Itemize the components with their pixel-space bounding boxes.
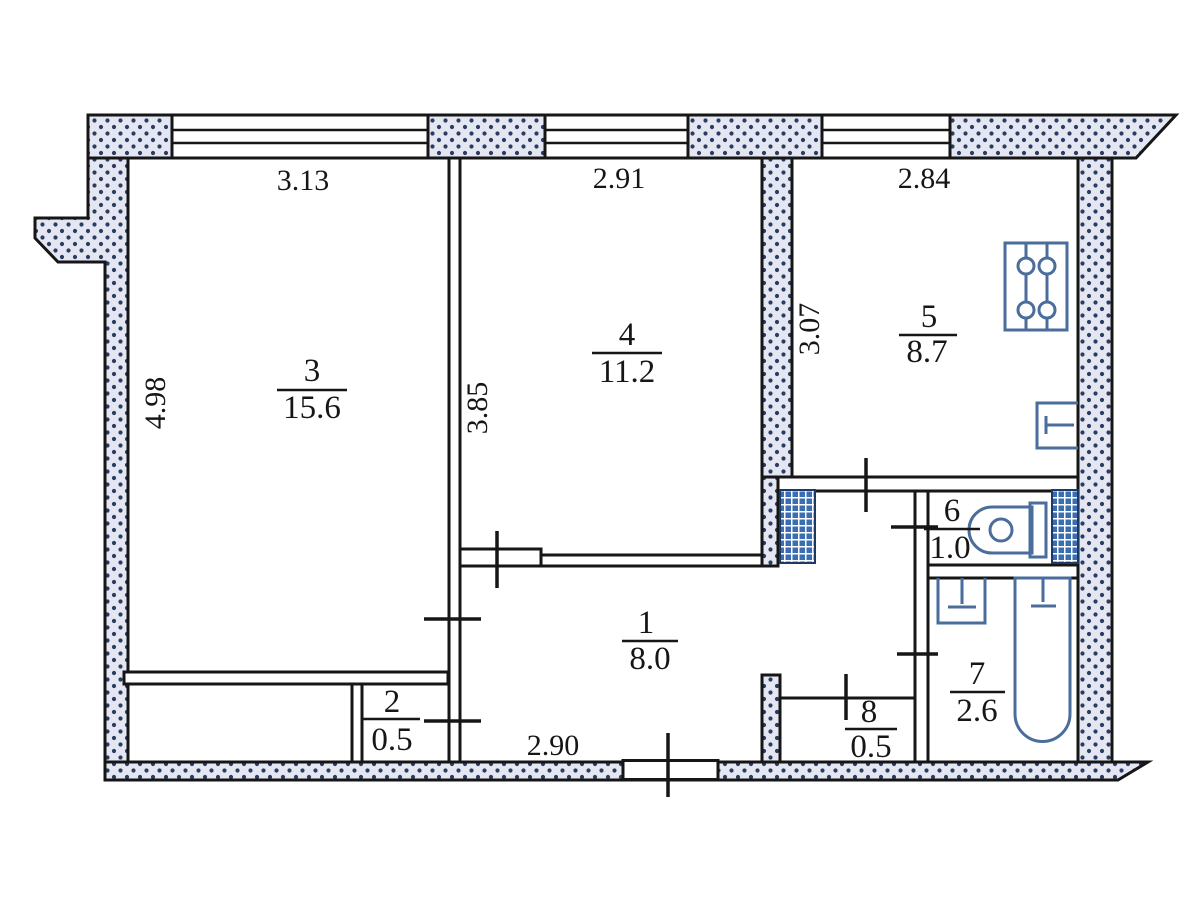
floor-plan-page: 3.13 2.91 2.84 4.98 3.85 3.07 2.90 3 15.… (0, 0, 1200, 900)
room-label-5: 5 8.7 (899, 299, 957, 370)
stove-icon (1005, 243, 1067, 330)
dim-room4-depth: 3.85 (461, 382, 494, 435)
dim-left-wall: 4.98 (139, 377, 172, 430)
svg-text:5: 5 (921, 299, 938, 335)
entrance-opening (623, 761, 718, 780)
kitchen-sink-icon (1037, 403, 1078, 448)
wall-kitchen-partition-bearing (762, 158, 792, 477)
room-label-6: 6 1.0 (924, 493, 980, 566)
svg-text:0.5: 0.5 (850, 729, 891, 765)
floor-plan-drawing: 3.13 2.91 2.84 4.98 3.85 3.07 2.90 3 15.… (0, 0, 1200, 900)
room-label-7: 7 2.6 (950, 656, 1005, 729)
svg-text:3: 3 (304, 353, 321, 389)
partition-room4-hall-left (460, 549, 541, 566)
partition-kitchen-bottom (778, 477, 1078, 491)
dim-window-middle: 2.91 (593, 162, 646, 195)
svg-text:8.7: 8.7 (906, 334, 947, 370)
room-labels: 3 15.6 4 11.2 5 8.7 1 8.0 2 0.5 6 1.0 (277, 299, 1005, 765)
vent-shaft-wc (1052, 490, 1078, 563)
svg-text:2: 2 (384, 684, 401, 720)
partition-wc-bath (918, 565, 1078, 578)
window-room4 (545, 115, 688, 158)
vent-shaft-hall (780, 490, 815, 563)
partition-closet-divider (352, 684, 362, 762)
partition-room3-room4 (449, 158, 460, 762)
washbasin-icon (938, 578, 985, 623)
bathtub-icon (1015, 578, 1070, 742)
toilet-icon (969, 503, 1046, 557)
windows (172, 115, 950, 158)
window-room3 (172, 115, 428, 158)
room-label-2: 2 0.5 (363, 684, 420, 758)
dim-room5-depth: 3.07 (793, 303, 826, 356)
svg-text:1.0: 1.0 (929, 530, 970, 566)
svg-text:7: 7 (969, 656, 986, 692)
svg-text:6: 6 (944, 493, 961, 529)
partition-closet-front (124, 672, 448, 684)
partition-wc-west (915, 491, 928, 762)
dim-window-left: 3.13 (277, 164, 330, 197)
room-label-4: 4 11.2 (592, 317, 662, 390)
wall-left (35, 158, 128, 762)
room-label-3: 3 15.6 (277, 353, 347, 426)
window-room5 (822, 115, 950, 158)
svg-text:2.6: 2.6 (956, 693, 997, 729)
room-label-8: 8 0.5 (845, 694, 897, 765)
interior-walls (124, 158, 1078, 762)
svg-text:4: 4 (619, 317, 636, 353)
svg-text:15.6: 15.6 (283, 390, 341, 426)
svg-text:0.5: 0.5 (371, 722, 412, 758)
dim-window-right: 2.84 (898, 162, 951, 195)
wall-right (1078, 158, 1112, 762)
partition-room4-hall-right (541, 555, 762, 566)
wall-pillar-hall (762, 675, 780, 762)
svg-text:8.0: 8.0 (629, 641, 670, 677)
svg-text:8: 8 (861, 694, 878, 730)
room-label-1: 1 8.0 (622, 605, 678, 677)
svg-text:11.2: 11.2 (599, 354, 656, 390)
wall-stub-hall (762, 477, 778, 566)
svg-text:1: 1 (638, 605, 655, 641)
dim-hall-width: 2.90 (527, 729, 580, 762)
